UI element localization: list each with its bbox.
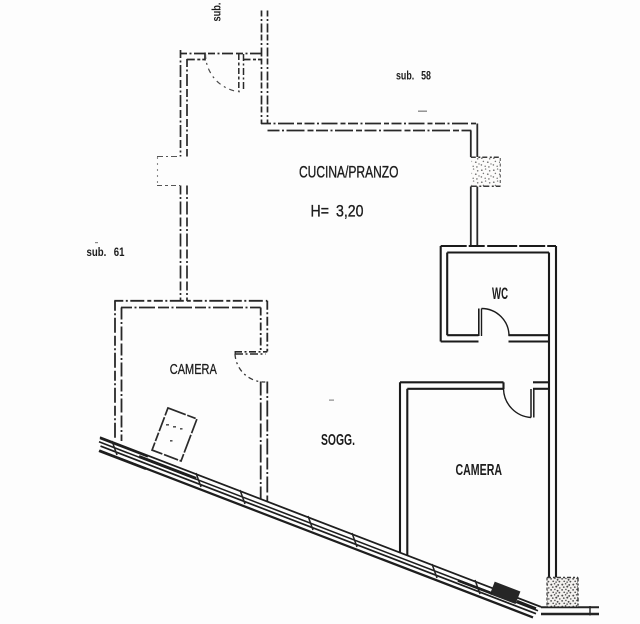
svg-text:CAMERA: CAMERA <box>456 462 503 479</box>
svg-text:SOGG.: SOGG. <box>321 432 355 449</box>
svg-text:sub. 58: sub. 58 <box>396 69 431 83</box>
svg-text:WC: WC <box>492 284 508 303</box>
svg-text:sub.: sub. <box>210 3 224 22</box>
svg-text:CAMERA: CAMERA <box>170 362 217 378</box>
svg-text:sub. 61: sub. 61 <box>87 245 125 259</box>
svg-text:H= 3,20: H= 3,20 <box>311 202 364 221</box>
svg-text:CUCINA/PRANZO: CUCINA/PRANZO <box>299 163 399 182</box>
